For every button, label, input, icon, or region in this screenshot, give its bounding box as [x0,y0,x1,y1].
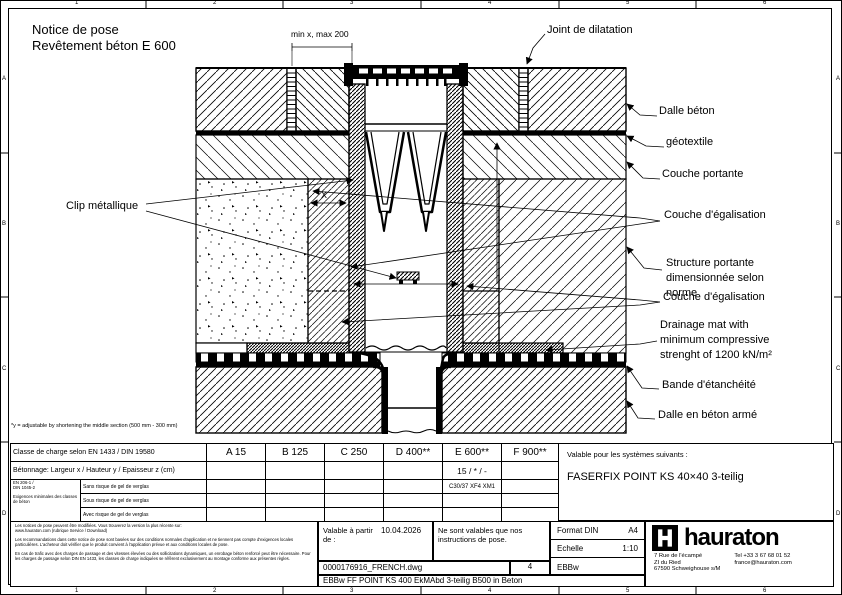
concrete-row-label: Bétonnage: Largeur x / Hauteur y / Epais… [11,462,207,480]
doc-title-cell: EBBw FF POINT KS 400 EkMAbd 3-teilig B50… [318,575,645,587]
email: france@hauraton.com [734,560,791,567]
table-cell [266,494,325,508]
table-cell [207,462,266,480]
format-row: Format DIN A4 [551,522,644,540]
label-dalle-beton: Dalle béton [659,105,715,118]
label-drainage-mat: Drainage mat with minimum compressive st… [660,318,772,363]
table-cell [384,480,443,494]
dimension-x-label: X [321,189,327,202]
spec-row-label: Sans risque de gel de verglas [81,480,207,494]
frame-row-marker: D [2,511,6,518]
frame-col-marker: 2 [213,0,216,7]
disclaimer-text: Les notices de pose peuvent être modifié… [15,524,313,534]
spec-note: Exigences minimales des classes de béton [13,494,78,504]
frame-col-marker: 2 [213,588,216,595]
label-clip-metallique: Clip métallique [66,200,138,213]
spec-row-label: Avec risque de gel de verglas [81,508,207,522]
table-cell [502,480,559,494]
class-header: B 125 [266,444,325,462]
file-name-cell: 0000176916_FRENCH.dwg [318,561,510,575]
table-cell [325,494,384,508]
page-subtitle: Revêtement béton E 600 [32,38,176,54]
table-cell [443,494,502,508]
table-cell [443,508,502,522]
systems-label: Valable pour les systèmes suivants : [567,450,825,459]
table-cell [502,508,559,522]
load-class-table: Classe de charge selon EN 1433 / DIN 195… [10,443,559,522]
frame-col-marker: 5 [626,0,629,7]
frame-row-marker: A [2,76,6,83]
brand-logo: hauraton [646,522,833,551]
valid-from-box: Valable à partir de : 10.04.2026 [318,521,433,561]
table-cell: 15 / * / - [443,462,502,480]
dimension-min-x-label: min x, max 200 [291,28,349,41]
table-cell [502,462,559,480]
table-cell [325,462,384,480]
table-cell [325,508,384,522]
scale-label: Echelle [557,544,583,553]
code-row: EBBw [551,558,644,576]
frame-col-marker: 4 [488,588,491,595]
class-header: C 250 [325,444,384,462]
spec-row-label: Sous risque de gel de verglas [81,494,207,508]
label-couche-portante: Couche portante [662,168,743,181]
class-header: A 15 [207,444,266,462]
scale-row: Echelle 1:10 [551,540,644,558]
valid-from-label: Valable à partir de : [323,526,381,556]
frame-row-marker: D [836,511,840,518]
frame-row-marker: B [836,221,840,228]
brand-block: hauraton 7 Rue de l'écampé ZI du Ried 67… [645,521,834,587]
spec-norms-cell: EN 206-1 / DIN 1045-2 Exigences minimale… [11,480,81,522]
label-geotextile: géotextile [666,136,713,149]
frame-col-marker: 6 [763,588,766,595]
brand-wordmark: hauraton [684,525,779,551]
table-cell [266,480,325,494]
table-cell [502,494,559,508]
class-header: D 400** [384,444,443,462]
label-joint-de-dilatation: Joint de dilatation [547,24,633,37]
spec-norms: EN 206-1 / DIN 1045-2 [13,480,78,490]
systems-box: Valable pour les systèmes suivants : FAS… [558,443,834,521]
valid-from-date: 10.04.2026 [381,526,421,556]
scale-value: 1:10 [622,544,638,553]
table-cell [207,508,266,522]
table-cell [207,480,266,494]
table-cell [325,480,384,494]
label-dalle-beton-arme: Dalle en béton armé [658,409,757,422]
sheet-number-cell: 4 [510,561,550,575]
table-cell [266,462,325,480]
disclaimer-text: En cas de trafic avec des charges de pas… [15,552,313,562]
table-cell [266,508,325,522]
frame-col-marker: 1 [75,588,78,595]
drawing-code: EBBw [557,563,579,572]
table-cell [384,494,443,508]
class-header: F 900** [502,444,559,462]
phone: Tel +33 3 67 68 01 52 [734,553,791,560]
table-cell [384,508,443,522]
frame-col-marker: 3 [350,588,353,595]
label-couche-egalisation-2: Couche d'égalisation [663,291,765,304]
drawing-sheet: 1 2 3 4 5 6 1 2 3 4 5 6 A B C D A B C D … [0,0,842,595]
frame-row-marker: B [2,221,6,228]
note-box: Ne sont valables que nos instructions de… [433,521,550,561]
frame-row-marker: C [2,366,6,373]
hauraton-logo-icon [652,525,678,551]
label-bande-etancheite: Bande d'étanchéité [662,379,756,392]
footnote: *y = adjustable by shortening the middle… [11,420,177,433]
format-value: A4 [628,526,638,535]
brand-address: 7 Rue de l'écampé ZI du Ried 67590 Schwe… [646,551,833,573]
frame-col-marker: 1 [75,0,78,7]
frame-col-marker: 6 [763,0,766,7]
address-lines: 7 Rue de l'écampé ZI du Ried 67590 Schwe… [654,553,720,573]
systems-value: FASERFIX POINT KS 40×40 3-teilig [567,471,825,483]
table-cell [384,462,443,480]
format-block: Format DIN A4 Echelle 1:10 EBBw [550,521,645,575]
frame-row-marker: C [836,366,840,373]
table-cell: C30/37 XF4 XM1 [443,480,502,494]
class-header: E 600** [443,444,502,462]
load-class-header: Classe de charge selon EN 1433 / DIN 195… [11,444,207,462]
frame-col-marker: 5 [626,588,629,595]
disclaimer-text: Les recommandations dans cette notice de… [15,538,313,548]
frame-col-marker: 4 [488,0,491,7]
disclaimer-block: Les notices de pose peuvent être modifié… [10,521,318,587]
page-title: Notice de pose [32,22,119,38]
format-label: Format DIN [557,526,598,535]
label-couche-egalisation: Couche d'égalisation [664,209,766,222]
table-cell [207,494,266,508]
frame-row-marker: A [836,76,840,83]
frame-col-marker: 3 [350,0,353,7]
